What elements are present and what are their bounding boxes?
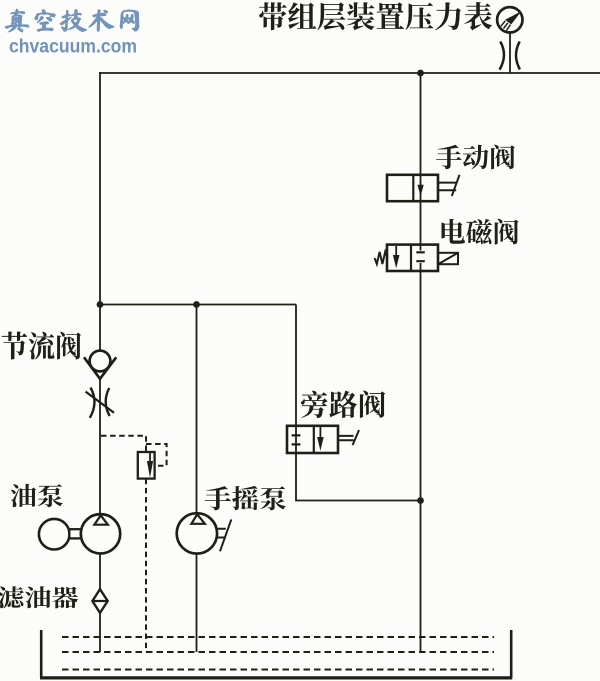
svg-text:chvacuum.com: chvacuum.com [9, 35, 137, 57]
